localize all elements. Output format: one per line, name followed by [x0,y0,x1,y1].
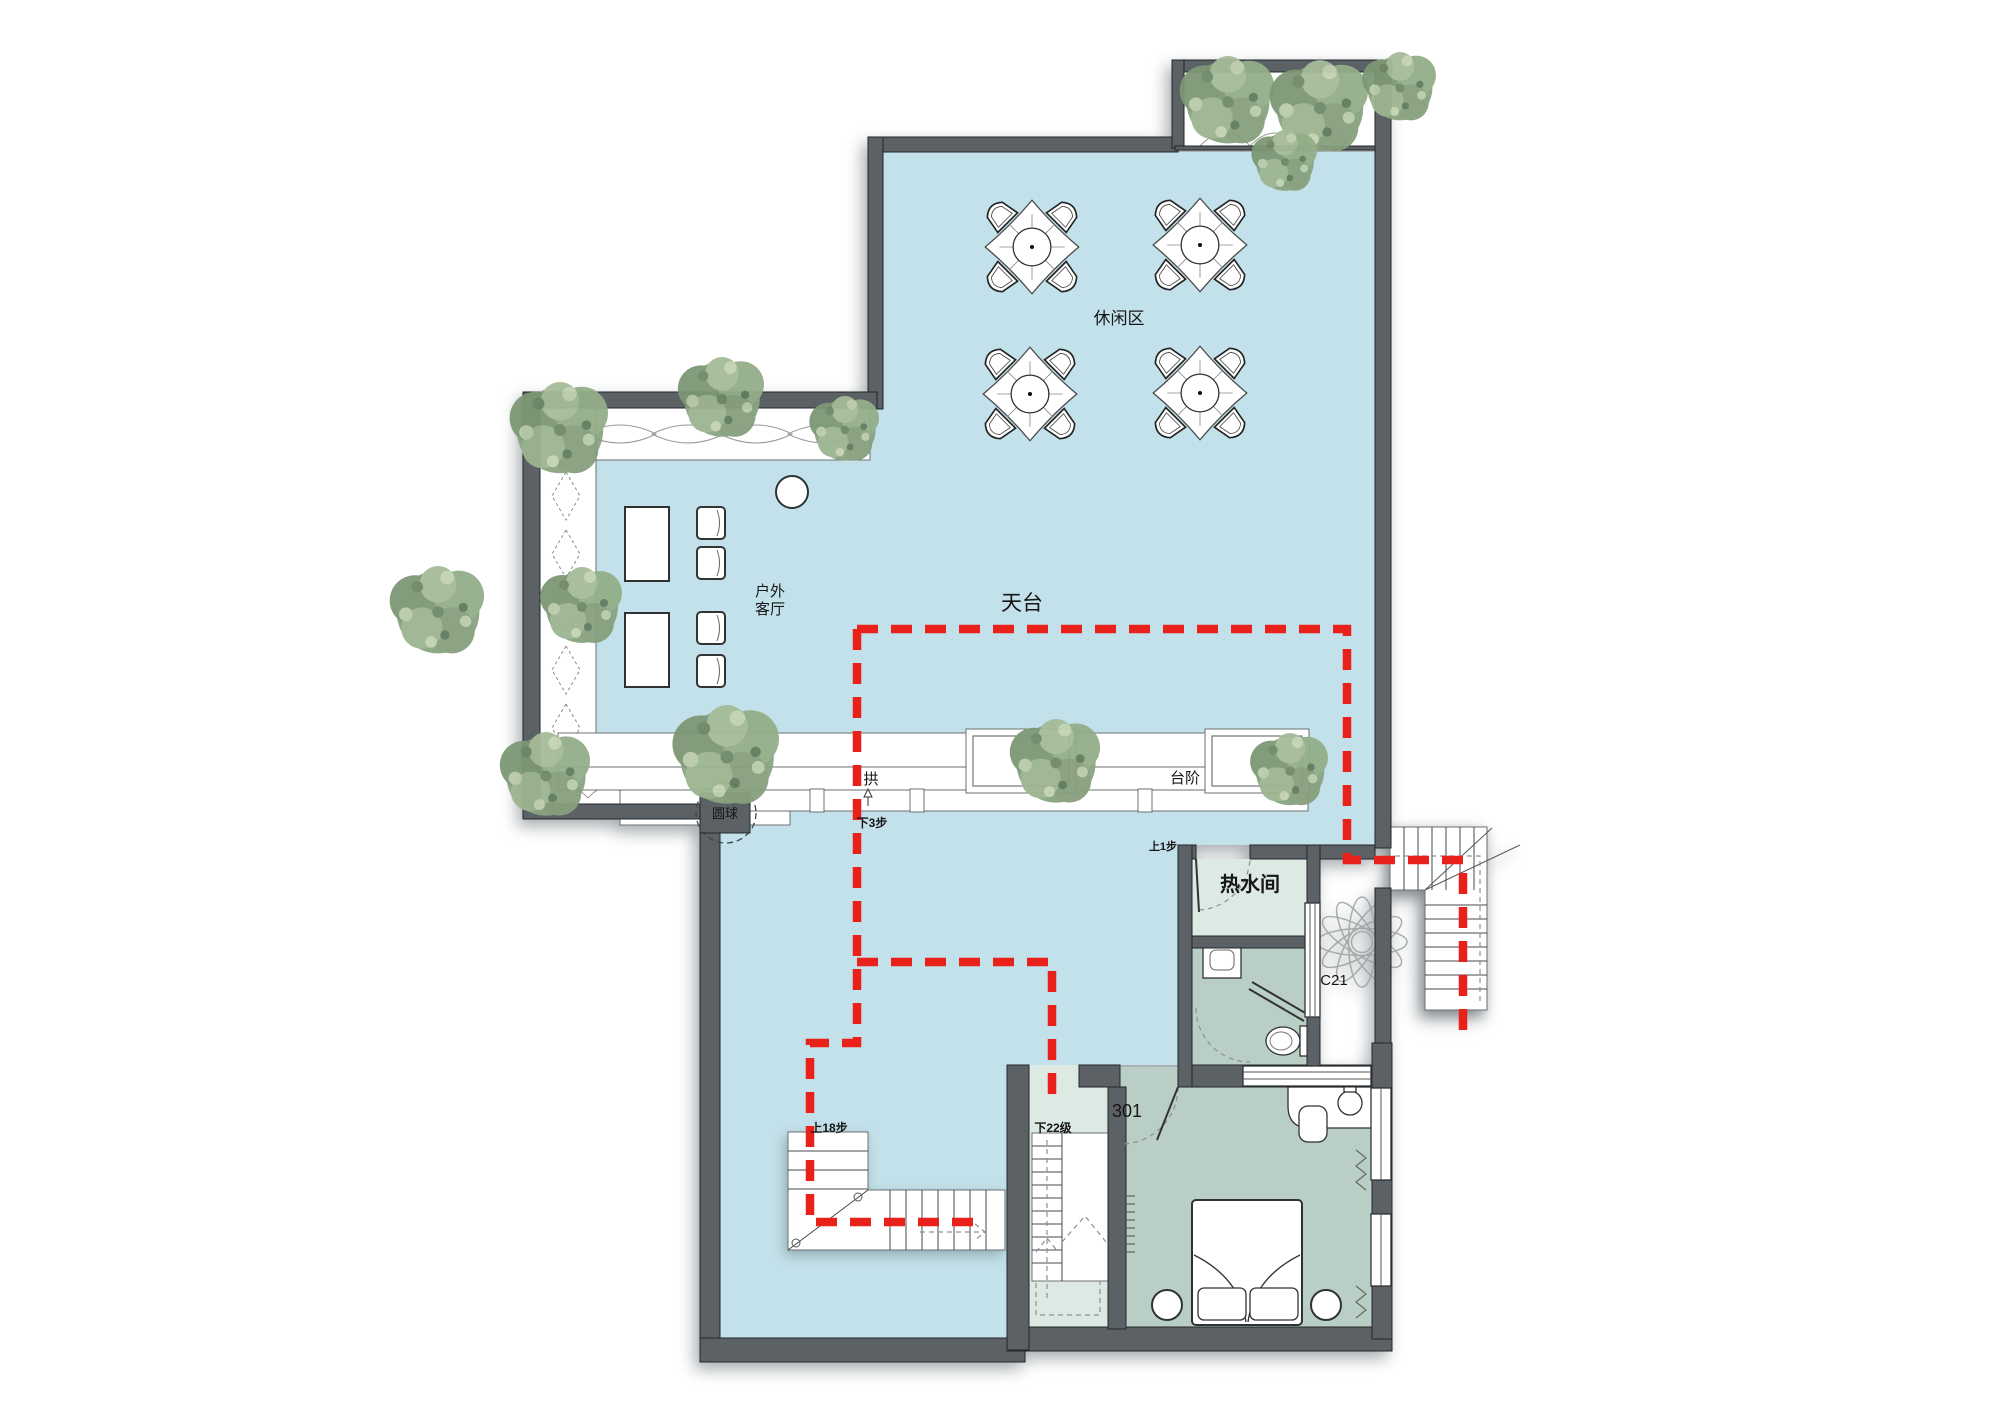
stool-icon [697,547,725,579]
tree-icon [390,566,484,653]
label-arch: 拱 [863,771,878,788]
table-icon [625,507,669,581]
label-window-c21: C21 [1320,972,1348,989]
label-leisure-area: 休闲区 [1094,309,1145,328]
desk-chair-icon [1299,1106,1327,1142]
stool-icon [697,655,725,687]
tree-icon [500,732,590,816]
label-up-18-steps: 上18步 [810,1120,847,1135]
stool-icon [697,507,725,539]
label-terrace: 天台 [1001,592,1043,615]
sink-icon [1203,946,1241,978]
nightstand-icon [1152,1290,1182,1320]
stool-icon [697,612,725,644]
round-table-icon [776,476,808,508]
pillow-icon [1198,1288,1246,1320]
patio-table-icon [1150,195,1251,296]
label-steps: 台阶 [1170,770,1200,787]
hot-water-room-floor [1192,859,1307,936]
label-up-1-step: 上1步 [1149,839,1177,853]
window-band [1243,1066,1371,1086]
patio-table-icon [980,344,1081,445]
label-room-301: 301 [1112,1101,1142,1121]
toilet-icon [1266,1027,1300,1055]
label-outdoor-living-2: 客厅 [755,601,785,618]
stairs-icon-court [1390,827,1520,1010]
floor-plan-page: 休闲区 户外 客厅 天台 拱 下3步 台阶 上1步 热水间 C21 301 上1… [0,0,2000,1413]
patio-table-icon [1150,343,1251,444]
pillow-icon [1250,1288,1298,1320]
label-outdoor-living-1: 户外 [755,583,785,600]
table-icon [625,613,669,687]
patio-table-icon [982,197,1083,298]
label-hot-water-room: 热水间 [1220,873,1280,896]
building [523,60,1520,1362]
label-down-3-steps: 下3步 [857,815,888,830]
label-sphere: 圆球 [712,806,738,821]
floor-plan: 休闲区 户外 客厅 天台 拱 下3步 台阶 上1步 热水间 C21 301 上1… [0,0,2000,1413]
nightstand-icon [1311,1290,1341,1320]
basin-icon [1338,1091,1362,1115]
window-c21 [1305,903,1320,1017]
label-down-22-steps: 下22级 [1034,1120,1071,1135]
